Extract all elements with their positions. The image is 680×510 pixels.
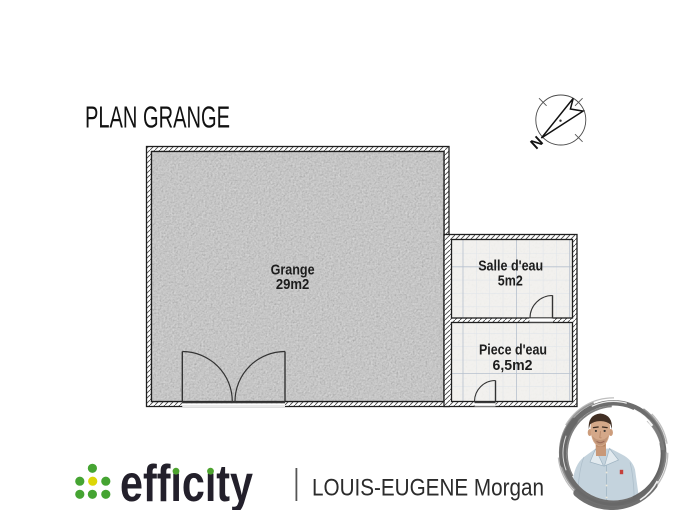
svg-text:PLAN GRANGE: PLAN GRANGE [85, 100, 230, 135]
svg-text:Grange: Grange [271, 262, 315, 278]
svg-text:29m2: 29m2 [276, 277, 310, 293]
svg-text:LOUIS-EUGENE Morgan: LOUIS-EUGENE Morgan [312, 475, 544, 502]
svg-text:Salle d'eau: Salle d'eau [478, 258, 543, 274]
svg-text:Piece d'eau: Piece d'eau [479, 342, 547, 358]
svg-text:5m2: 5m2 [498, 273, 523, 289]
svg-text:6,5m2: 6,5m2 [493, 358, 533, 374]
svg-text:effıcıty: effıcıty [120, 455, 253, 510]
